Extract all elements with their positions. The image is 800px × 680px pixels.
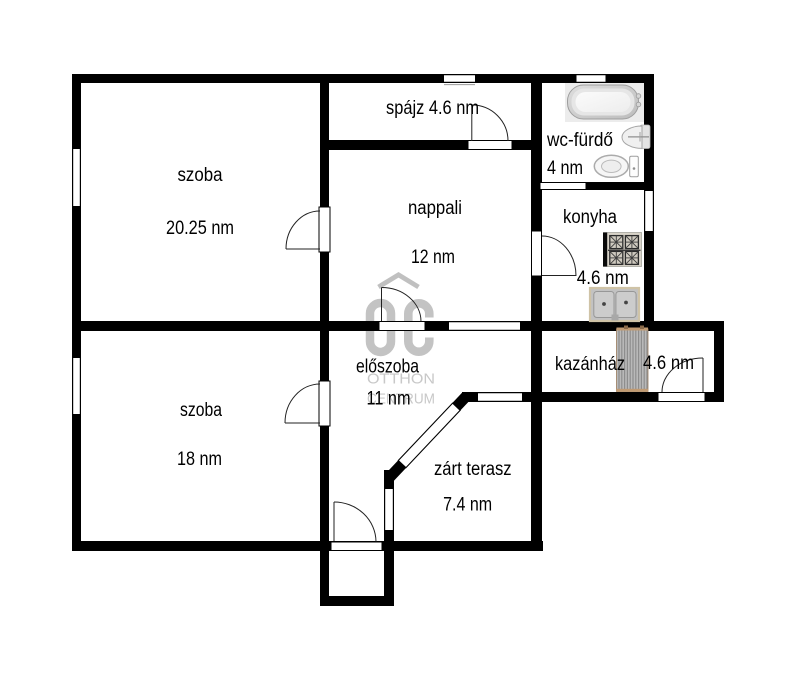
svg-text:wc-fürdő: wc-fürdő <box>546 130 613 151</box>
svg-text:kazánház: kazánház <box>555 354 625 375</box>
svg-text:18 nm: 18 nm <box>177 449 222 470</box>
svg-text:11 nm: 11 nm <box>367 389 411 410</box>
svg-text:nappali: nappali <box>408 198 462 219</box>
svg-text:előszoba: előszoba <box>356 357 419 378</box>
svg-text:szoba: szoba <box>180 400 222 421</box>
svg-text:szoba: szoba <box>178 165 223 186</box>
svg-text:zárt terasz: zárt terasz <box>434 459 512 480</box>
svg-text:7.4 nm: 7.4 nm <box>443 495 492 516</box>
svg-text:spájz 4.6 nm: spájz 4.6 nm <box>386 98 479 119</box>
svg-text:4.6 nm: 4.6 nm <box>643 353 694 374</box>
svg-text:konyha: konyha <box>563 207 617 228</box>
svg-text:20.25 nm: 20.25 nm <box>166 218 234 239</box>
svg-text:4.6 nm: 4.6 nm <box>577 268 629 289</box>
svg-text:12 nm: 12 nm <box>411 247 455 268</box>
svg-text:4 nm: 4 nm <box>547 158 583 179</box>
